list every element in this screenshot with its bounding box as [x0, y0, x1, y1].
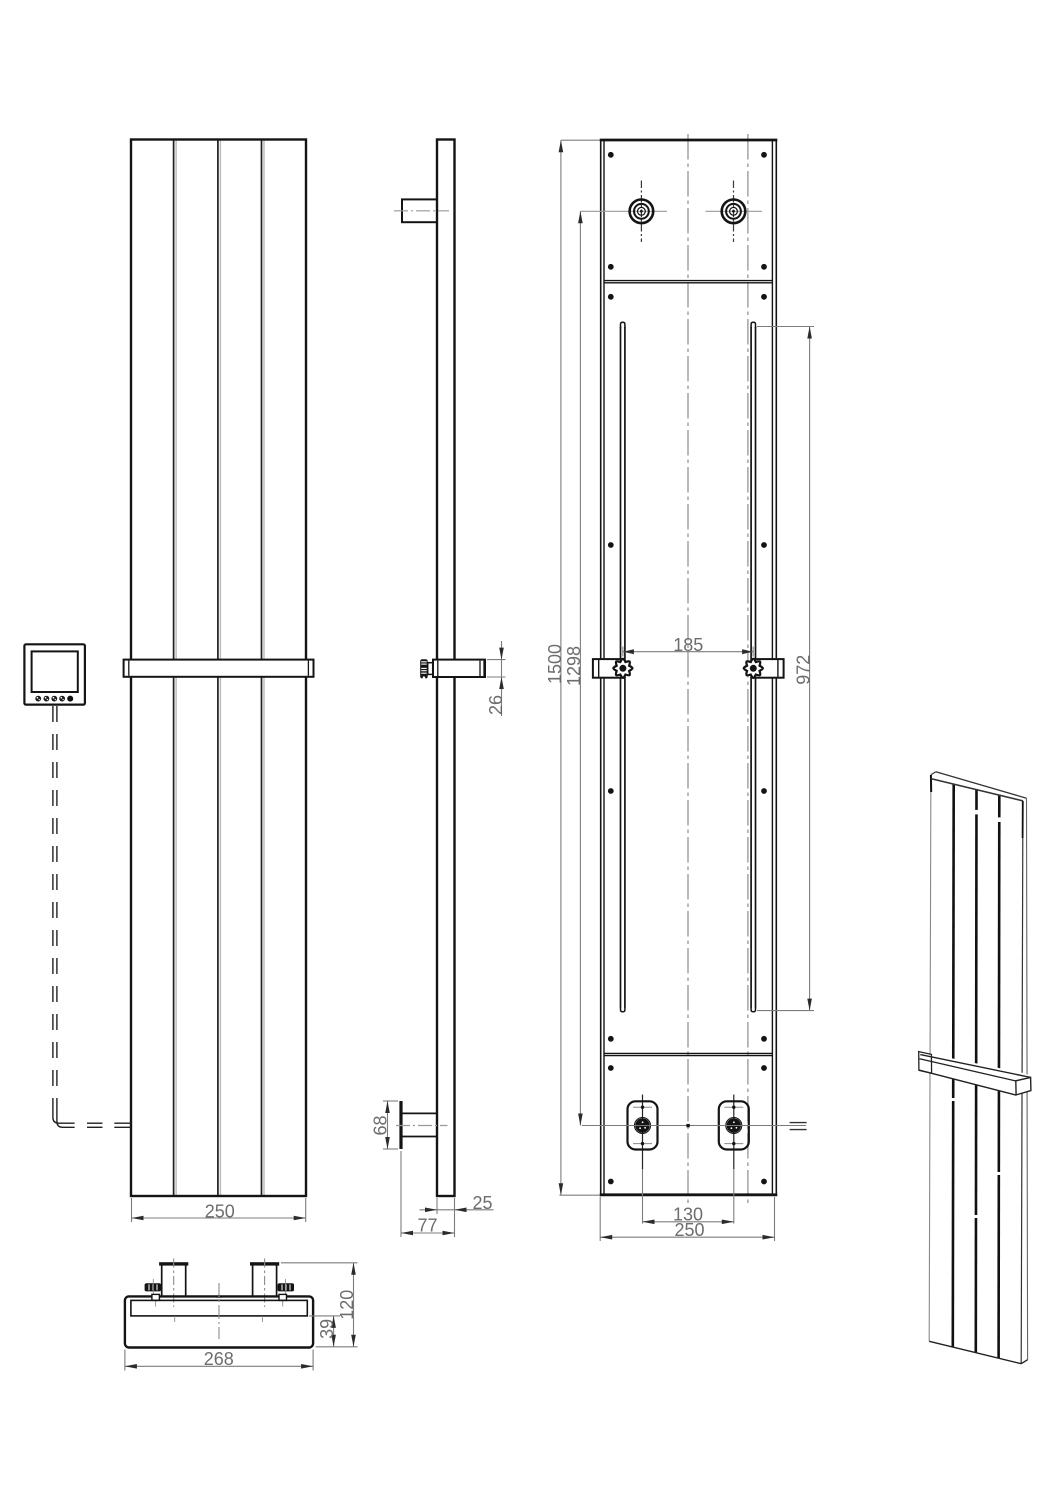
svg-text:185: 185: [673, 635, 703, 655]
svg-text:39: 39: [317, 1319, 337, 1339]
svg-text:250: 250: [674, 1220, 704, 1240]
svg-text:25: 25: [472, 1193, 492, 1213]
svg-text:1298: 1298: [564, 646, 584, 686]
svg-text:26: 26: [486, 695, 506, 715]
svg-text:68: 68: [370, 1115, 390, 1135]
svg-text:250: 250: [205, 1202, 235, 1222]
svg-text:268: 268: [204, 1349, 234, 1369]
svg-text:77: 77: [417, 1216, 437, 1236]
svg-text:120: 120: [337, 1290, 357, 1320]
svg-text:1500: 1500: [545, 644, 565, 684]
svg-text:972: 972: [793, 655, 813, 685]
